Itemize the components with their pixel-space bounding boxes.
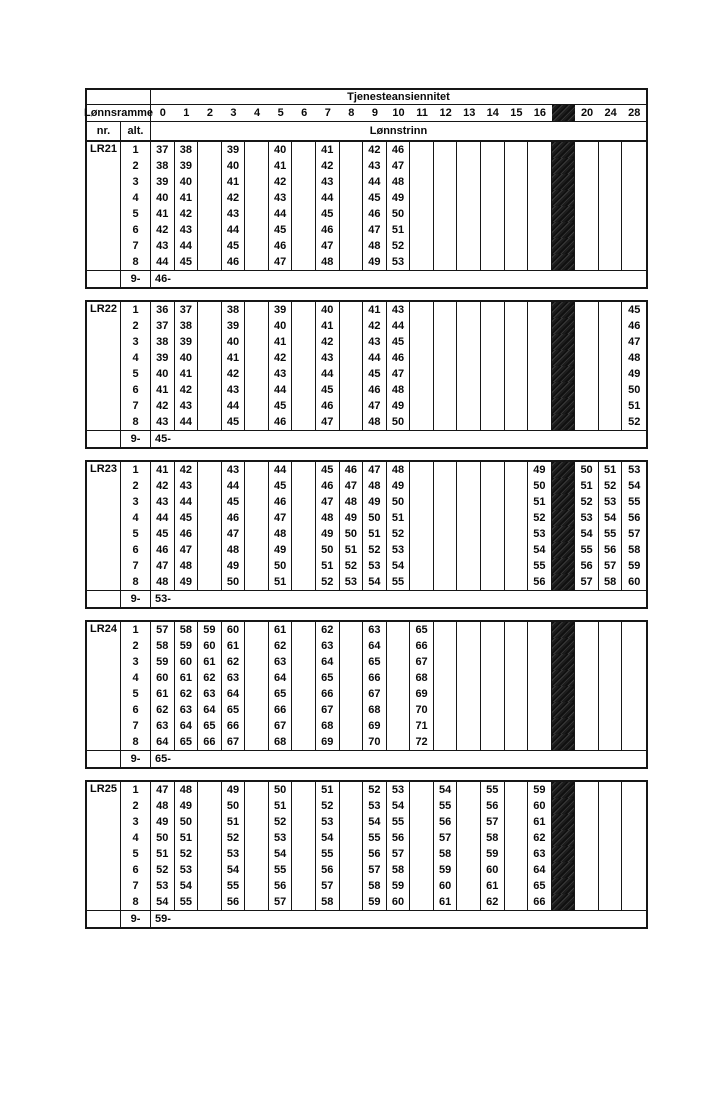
lonnstrinn-cell bbox=[505, 302, 529, 318]
lonnstrinn-cell bbox=[245, 318, 269, 334]
lonnstrinn-cell: 43 bbox=[175, 398, 199, 414]
lonnstrinn-cell bbox=[575, 206, 599, 222]
blocked-column-cell bbox=[552, 638, 576, 654]
lonnstrinn-cell: 43 bbox=[316, 174, 340, 190]
lonnstrinn-cell bbox=[457, 686, 481, 702]
lonnstrinn-cell bbox=[505, 718, 529, 734]
lonnstrinn-cell: 53 bbox=[387, 542, 411, 558]
lonnstrinn-cell bbox=[481, 414, 505, 430]
lonnstrinn-cell: 52 bbox=[151, 862, 175, 878]
lonnstrinn-cell: 42 bbox=[316, 158, 340, 174]
lonnstrinn-cell: 55 bbox=[316, 846, 340, 862]
lonnstrinn-cell: 59 bbox=[434, 862, 458, 878]
lonnstrinn-cell bbox=[245, 638, 269, 654]
lonnstrinn-cell bbox=[245, 782, 269, 798]
lonnsramme-id-LR21: LR21 bbox=[87, 142, 121, 270]
lonnstrinn-cell bbox=[340, 366, 364, 382]
lonnstrinn-cell: 54 bbox=[387, 558, 411, 574]
lonnstrinn-cell: 54 bbox=[316, 830, 340, 846]
lonnstrinn-cell bbox=[245, 478, 269, 494]
lonnstrinn-cell: 59 bbox=[363, 894, 387, 910]
lonnstrinn-cell bbox=[457, 254, 481, 270]
lonnstrinn-cell bbox=[245, 654, 269, 670]
lonnstrinn-cell: 45 bbox=[363, 366, 387, 382]
lonnstrinn-cell bbox=[622, 702, 646, 718]
alt-label: 6 bbox=[121, 222, 151, 238]
lonnstrinn-cell bbox=[434, 542, 458, 558]
alt-label: 5 bbox=[121, 686, 151, 702]
lonnstrinn-cell: 41 bbox=[269, 158, 293, 174]
lonnstrinn-cell bbox=[198, 542, 222, 558]
lonnstrinn-cell bbox=[599, 174, 623, 190]
lonnstrinn-cell: 54 bbox=[575, 526, 599, 542]
lonnstrinn-cell bbox=[457, 702, 481, 718]
lonnstrinn-cell: 54 bbox=[175, 878, 199, 894]
lonnstrinn-cell bbox=[387, 654, 411, 670]
lonnstrinn-cell: 52 bbox=[387, 238, 411, 254]
lonnstrinn-cell bbox=[457, 494, 481, 510]
lonnstrinn-cell bbox=[599, 654, 623, 670]
lonnstrinn-cell: 44 bbox=[269, 462, 293, 478]
lonnstrinn-cell bbox=[528, 222, 552, 238]
seniority-col-label-7: 7 bbox=[316, 105, 340, 122]
lonnstrinn-cell bbox=[528, 398, 552, 414]
lonnstrinn-cell: 59 bbox=[622, 558, 646, 574]
blocked-column-cell bbox=[552, 846, 576, 862]
lonnstrinn-cell: 44 bbox=[269, 206, 293, 222]
lonnstrinn-cell: 46 bbox=[269, 414, 293, 430]
lonnstrinn-cell bbox=[575, 862, 599, 878]
lonnstrinn-cell bbox=[622, 190, 646, 206]
lonnstrinn-cell bbox=[434, 190, 458, 206]
lonnstrinn-cell bbox=[292, 190, 316, 206]
lonnstrinn-cell: 41 bbox=[316, 142, 340, 158]
lonnstrinn-cell: 57 bbox=[622, 526, 646, 542]
lonnstrinn-cell bbox=[245, 702, 269, 718]
lonnstrinn-cell bbox=[481, 542, 505, 558]
lonnstrinn-cell bbox=[599, 366, 623, 382]
lonnstrinn-cell: 59 bbox=[481, 846, 505, 862]
lonnstrinn-cell bbox=[410, 526, 434, 542]
footer-nr-cell bbox=[87, 750, 121, 767]
lonnstrinn-cell: 48 bbox=[316, 254, 340, 270]
lonnstrinn-cell: 52 bbox=[269, 814, 293, 830]
lonnstrinn-cell: 44 bbox=[316, 190, 340, 206]
lonnstrinn-cell: 56 bbox=[528, 574, 552, 590]
lonnstrinn-cell: 43 bbox=[222, 462, 246, 478]
alt-label: 7 bbox=[121, 238, 151, 254]
lonnstrinn-cell bbox=[622, 686, 646, 702]
lonnstrinn-cell bbox=[292, 254, 316, 270]
footer-alt-label: 9- bbox=[121, 430, 151, 447]
blocked-column-cell bbox=[552, 798, 576, 814]
lonnsramme-header: Lønnsramme bbox=[87, 105, 151, 122]
lonnstrinn-cell: 55 bbox=[622, 494, 646, 510]
lonnstrinn-cell: 40 bbox=[175, 350, 199, 366]
lonnstrinn-cell bbox=[481, 574, 505, 590]
lonnstrinn-cell bbox=[599, 414, 623, 430]
lonnstrinn-cell: 45 bbox=[222, 238, 246, 254]
lonnstrinn-cell: 55 bbox=[363, 830, 387, 846]
lonnstrinn-cell: 47 bbox=[316, 238, 340, 254]
lonnstrinn-cell bbox=[434, 718, 458, 734]
lonnstrinn-cell: 45 bbox=[387, 334, 411, 350]
lonnstrinn-cell bbox=[481, 510, 505, 526]
blocked-column-cell bbox=[552, 158, 576, 174]
lonnstrinn-cell bbox=[575, 222, 599, 238]
lonnstrinn-cell bbox=[198, 174, 222, 190]
footer-nr-cell bbox=[87, 430, 121, 447]
lonnstrinn-cell bbox=[292, 574, 316, 590]
lonnstrinn-cell: 49 bbox=[387, 398, 411, 414]
lonnstrinn-cell bbox=[410, 478, 434, 494]
blocked-column-cell bbox=[552, 894, 576, 910]
lonnstrinn-cell bbox=[434, 638, 458, 654]
lonnsramme-id-LR23: LR23 bbox=[87, 462, 121, 590]
lonnstrinn-cell: 41 bbox=[175, 190, 199, 206]
lonnstrinn-cell bbox=[340, 846, 364, 862]
lonnstrinn-cell bbox=[340, 190, 364, 206]
lonnstrinn-cell: 59 bbox=[198, 622, 222, 638]
lonnstrinn-cell bbox=[198, 478, 222, 494]
lonnstrinn-cell bbox=[505, 846, 529, 862]
blocked-column-cell bbox=[552, 414, 576, 430]
alt-label: 2 bbox=[121, 798, 151, 814]
blocked-column-cell bbox=[552, 206, 576, 222]
lonnstrinn-cell bbox=[387, 686, 411, 702]
lonnstrinn-cell bbox=[245, 542, 269, 558]
lonnstrinn-cell bbox=[410, 830, 434, 846]
lonnstrinn-cell: 40 bbox=[269, 318, 293, 334]
lonnstrinn-cell: 64 bbox=[363, 638, 387, 654]
lonnstrinn-cell bbox=[528, 190, 552, 206]
lonnstrinn-cell: 46 bbox=[269, 238, 293, 254]
lonnstrinn-cell bbox=[481, 382, 505, 398]
lonnstrinn-cell: 54 bbox=[222, 862, 246, 878]
lonnstrinn-cell: 46 bbox=[387, 142, 411, 158]
lonnstrinn-cell: 53 bbox=[222, 846, 246, 862]
alt-label: 8 bbox=[121, 414, 151, 430]
lonnstrinn-cell bbox=[292, 734, 316, 750]
lonnstrinn-cell: 64 bbox=[269, 670, 293, 686]
lonnstrinn-cell bbox=[434, 414, 458, 430]
lonnstrinn-cell: 41 bbox=[222, 350, 246, 366]
lonnstrinn-cell bbox=[410, 174, 434, 190]
alt-label: 4 bbox=[121, 830, 151, 846]
lonnstrinn-cell: 40 bbox=[151, 190, 175, 206]
lonnstrinn-cell: 50 bbox=[316, 542, 340, 558]
lonnstrinn-cell: 48 bbox=[316, 510, 340, 526]
lonnstrinn-cell: 47 bbox=[175, 542, 199, 558]
lonnstrinn-cell bbox=[575, 878, 599, 894]
lonnstrinn-cell bbox=[340, 318, 364, 334]
lonnstrinn-cell: 51 bbox=[622, 398, 646, 414]
lonnstrinn-cell bbox=[198, 574, 222, 590]
lonnstrinn-cell bbox=[292, 222, 316, 238]
alt-label: 6 bbox=[121, 702, 151, 718]
lonnstrinn-cell: 52 bbox=[363, 782, 387, 798]
lonnstrinn-cell bbox=[245, 846, 269, 862]
lonnstrinn-cell: 44 bbox=[222, 478, 246, 494]
lonnstrinn-cell bbox=[575, 846, 599, 862]
lonnstrinn-cell bbox=[505, 510, 529, 526]
lonnstrinn-cell: 39 bbox=[151, 350, 175, 366]
lonnstrinn-cell: 39 bbox=[151, 174, 175, 190]
footer-nr-cell bbox=[87, 270, 121, 287]
lonnstrinn-cell bbox=[434, 558, 458, 574]
lonnstrinn-cell bbox=[434, 334, 458, 350]
lonnstrinn-cell bbox=[410, 542, 434, 558]
lonnstrinn-cell bbox=[292, 478, 316, 494]
lonnstrinn-cell: 43 bbox=[151, 414, 175, 430]
lonnstrinn-cell: 44 bbox=[316, 366, 340, 382]
lonnstrinn-cell bbox=[198, 558, 222, 574]
lonnstrinn-cell: 57 bbox=[387, 846, 411, 862]
lonnstrinn-cell: 45 bbox=[151, 526, 175, 542]
lonnstrinn-cell: 50 bbox=[151, 830, 175, 846]
lonnstrinn-cell: 46 bbox=[222, 510, 246, 526]
lonnstrinn-cell: 58 bbox=[316, 894, 340, 910]
lonnstrinn-cell bbox=[575, 798, 599, 814]
alt-label: 1 bbox=[121, 142, 151, 158]
lonnstrinn-cell: 52 bbox=[387, 526, 411, 542]
lonnstrinn-cell: 57 bbox=[575, 574, 599, 590]
lonnstrinn-cell bbox=[410, 558, 434, 574]
lonnstrinn-cell: 42 bbox=[151, 398, 175, 414]
lonnstrinn-cell bbox=[528, 670, 552, 686]
seniority-col-label-10: 10 bbox=[387, 105, 411, 122]
lonnstrinn-cell: 53 bbox=[387, 782, 411, 798]
lonnstrinn-cell bbox=[622, 814, 646, 830]
lonnstrinn-cell bbox=[575, 814, 599, 830]
lonnstrinn-cell: 70 bbox=[363, 734, 387, 750]
lonnstrinn-cell bbox=[245, 574, 269, 590]
lonnstrinn-cell bbox=[410, 254, 434, 270]
lonnstrinn-cell bbox=[599, 142, 623, 158]
lonnstrinn-cell bbox=[505, 254, 529, 270]
lonnstrinn-cell bbox=[457, 222, 481, 238]
lonnstrinn-cell bbox=[622, 846, 646, 862]
blocked-column-cell bbox=[552, 718, 576, 734]
lonnstrinn-cell bbox=[410, 382, 434, 398]
lonnstrinn-cell bbox=[410, 190, 434, 206]
lonnstrinn-cell bbox=[292, 302, 316, 318]
lonnstrinn-cell bbox=[575, 382, 599, 398]
lonnstrinn-cell: 61 bbox=[198, 654, 222, 670]
lonnstrinn-cell bbox=[245, 382, 269, 398]
lonnstrinn-cell: 51 bbox=[269, 798, 293, 814]
lonnstrinn-cell: 58 bbox=[175, 622, 199, 638]
lonnstrinn-cell bbox=[434, 622, 458, 638]
seniority-col-label-0: 0 bbox=[151, 105, 175, 122]
lonnstrinn-cell: 68 bbox=[410, 670, 434, 686]
lonnstrinn-cell bbox=[622, 238, 646, 254]
lonnstrinn-cell bbox=[622, 798, 646, 814]
blocked-column-cell bbox=[552, 622, 576, 638]
lonnstrinn-cell: 51 bbox=[575, 478, 599, 494]
lonnstrinn-cell bbox=[457, 382, 481, 398]
lonnstrinn-cell: 44 bbox=[363, 174, 387, 190]
lonnstrinn-cell: 47 bbox=[316, 414, 340, 430]
lonnstrinn-cell: 51 bbox=[175, 830, 199, 846]
alt-column-header: alt. bbox=[121, 122, 151, 140]
lonnstrinn-cell bbox=[599, 670, 623, 686]
lonnstrinn-cell bbox=[457, 558, 481, 574]
lonnstrinn-cell bbox=[198, 206, 222, 222]
lonnstrinn-cell: 49 bbox=[340, 510, 364, 526]
lonnstrinn-cell: 61 bbox=[269, 622, 293, 638]
lonnstrinn-cell bbox=[410, 494, 434, 510]
lonnstrinn-cell: 66 bbox=[222, 718, 246, 734]
lonnstrinn-cell: 64 bbox=[528, 862, 552, 878]
alt-label: 7 bbox=[121, 558, 151, 574]
lonnstrinn-cell bbox=[622, 878, 646, 894]
lonnstrinn-cell: 52 bbox=[575, 494, 599, 510]
lonnstrinn-cell: 42 bbox=[151, 222, 175, 238]
lonnstrinn-cell: 42 bbox=[175, 462, 199, 478]
lonnstrinn-cell bbox=[622, 670, 646, 686]
alt-label: 8 bbox=[121, 254, 151, 270]
lonnstrinn-cell: 56 bbox=[599, 542, 623, 558]
lonnstrinn-cell bbox=[481, 686, 505, 702]
lonnstrinn-cell bbox=[528, 414, 552, 430]
lonnstrinn-cell bbox=[292, 622, 316, 638]
lonnstrinn-cell bbox=[245, 894, 269, 910]
lonnstrinn-cell: 68 bbox=[363, 702, 387, 718]
lonnstrinn-cell bbox=[622, 158, 646, 174]
lonnstrinn-cell: 37 bbox=[151, 318, 175, 334]
lonnstrinn-cell bbox=[528, 142, 552, 158]
lonnstrinn-cell bbox=[340, 238, 364, 254]
lonnstrinn-cell: 42 bbox=[175, 206, 199, 222]
lonnstrinn-cell bbox=[622, 862, 646, 878]
lonnstrinn-cell: 38 bbox=[175, 318, 199, 334]
lonnstrinn-cell bbox=[410, 398, 434, 414]
lonnstrinn-cell bbox=[457, 526, 481, 542]
lonnstrinn-cell bbox=[622, 254, 646, 270]
lonnstrinn-cell bbox=[410, 782, 434, 798]
lonnstrinn-cell: 40 bbox=[151, 366, 175, 382]
footer-value: 45- bbox=[151, 430, 646, 447]
lonnstrinn-cell bbox=[622, 894, 646, 910]
lonnstrinn-cell: 60 bbox=[198, 638, 222, 654]
lonnstrinn-cell: 55 bbox=[434, 798, 458, 814]
lonnstrinn-cell: 52 bbox=[363, 542, 387, 558]
lonnstrinn-cell: 49 bbox=[175, 798, 199, 814]
lonnstrinn-cell: 47 bbox=[340, 478, 364, 494]
lonnstrinn-cell: 66 bbox=[363, 670, 387, 686]
blocked-column-cell bbox=[552, 318, 576, 334]
lonnstrinn-cell bbox=[599, 398, 623, 414]
lonnstrinn-cell: 47 bbox=[363, 462, 387, 478]
lonnstrinn-cell: 45 bbox=[363, 190, 387, 206]
lonnstrinn-cell: 69 bbox=[316, 734, 340, 750]
lonnstrinn-cell: 60 bbox=[151, 670, 175, 686]
lonnstrinn-cell: 42 bbox=[175, 382, 199, 398]
lonnstrinn-cell: 64 bbox=[198, 702, 222, 718]
lonnstrinn-cell: 48 bbox=[387, 174, 411, 190]
alt-label: 5 bbox=[121, 526, 151, 542]
lonnstrinn-cell bbox=[457, 510, 481, 526]
lonnstrinn-cell bbox=[434, 158, 458, 174]
lonnstrinn-cell bbox=[599, 702, 623, 718]
lonnstrinn-cell: 58 bbox=[599, 574, 623, 590]
blocked-column-header bbox=[552, 105, 576, 122]
lonnstrinn-cell bbox=[622, 142, 646, 158]
lonnstrinn-cell: 50 bbox=[340, 526, 364, 542]
footer-nr-cell bbox=[87, 590, 121, 607]
lonnstrinn-cell bbox=[340, 638, 364, 654]
lonnstrinn-cell: 60 bbox=[622, 574, 646, 590]
header-corner-cell bbox=[87, 90, 151, 105]
alt-label: 4 bbox=[121, 510, 151, 526]
lonnstrinn-cell bbox=[340, 350, 364, 366]
lonnstrinn-cell bbox=[340, 734, 364, 750]
blocked-column-cell bbox=[552, 366, 576, 382]
lonnstrinn-cell bbox=[340, 382, 364, 398]
lonnstrinn-cell: 43 bbox=[175, 478, 199, 494]
lonnstrinn-cell bbox=[198, 462, 222, 478]
footer-nr-cell bbox=[87, 910, 121, 927]
lonnstrinn-cell bbox=[245, 238, 269, 254]
lonnstrinn-cell: 48 bbox=[340, 494, 364, 510]
lonnstrinn-cell: 54 bbox=[528, 542, 552, 558]
lonnstrinn-cell bbox=[575, 366, 599, 382]
lonnstrinn-cell bbox=[434, 574, 458, 590]
lonnstrinn-cell: 42 bbox=[222, 190, 246, 206]
lonnstrinn-cell: 62 bbox=[175, 686, 199, 702]
lonnstrinn-cell bbox=[528, 302, 552, 318]
lonnstrinn-cell bbox=[505, 142, 529, 158]
lonnstrinn-cell bbox=[245, 862, 269, 878]
lonnstrinn-cell bbox=[434, 478, 458, 494]
lonnstrinn-cell: 41 bbox=[269, 334, 293, 350]
lonnstrinn-cell bbox=[575, 318, 599, 334]
lonnstrinn-cell: 60 bbox=[434, 878, 458, 894]
lonnsramme-id-LR25: LR25 bbox=[87, 782, 121, 910]
blocked-column-cell bbox=[552, 686, 576, 702]
lonnstrinn-cell bbox=[340, 302, 364, 318]
lonnstrinn-cell bbox=[410, 238, 434, 254]
lonnstrinn-cell bbox=[198, 158, 222, 174]
lonnstrinn-cell: 61 bbox=[481, 878, 505, 894]
seniority-col-label-8: 8 bbox=[340, 105, 364, 122]
lonnstrinn-cell bbox=[198, 302, 222, 318]
lonnstrinn-cell: 45 bbox=[316, 462, 340, 478]
lonnstrinn-cell: 63 bbox=[316, 638, 340, 654]
lonnstrinn-cell: 39 bbox=[222, 142, 246, 158]
lonnstrinn-cell: 44 bbox=[151, 510, 175, 526]
lonnstrinn-cell: 52 bbox=[340, 558, 364, 574]
lonnstrinn-cell bbox=[198, 334, 222, 350]
blocked-column-cell bbox=[552, 510, 576, 526]
lonnstrinn-cell: 48 bbox=[269, 526, 293, 542]
lonnstrinn-cell bbox=[245, 158, 269, 174]
lonnstrinn-cell: 53 bbox=[622, 462, 646, 478]
lonnstrinn-cell: 57 bbox=[363, 862, 387, 878]
lonnstrinn-cell bbox=[198, 238, 222, 254]
lonnstrinn-cell bbox=[505, 830, 529, 846]
blocked-column-cell bbox=[552, 670, 576, 686]
lonnstrinn-cell: 43 bbox=[387, 302, 411, 318]
lonnstrinn-cell bbox=[528, 238, 552, 254]
footer-value: 53- bbox=[151, 590, 646, 607]
lonnstrinn-cell: 50 bbox=[387, 494, 411, 510]
seniority-col-label-4: 4 bbox=[245, 105, 269, 122]
lonnstrinn-cell bbox=[292, 334, 316, 350]
lonnstrinn-cell: 50 bbox=[622, 382, 646, 398]
lonnstrinn-cell bbox=[505, 542, 529, 558]
